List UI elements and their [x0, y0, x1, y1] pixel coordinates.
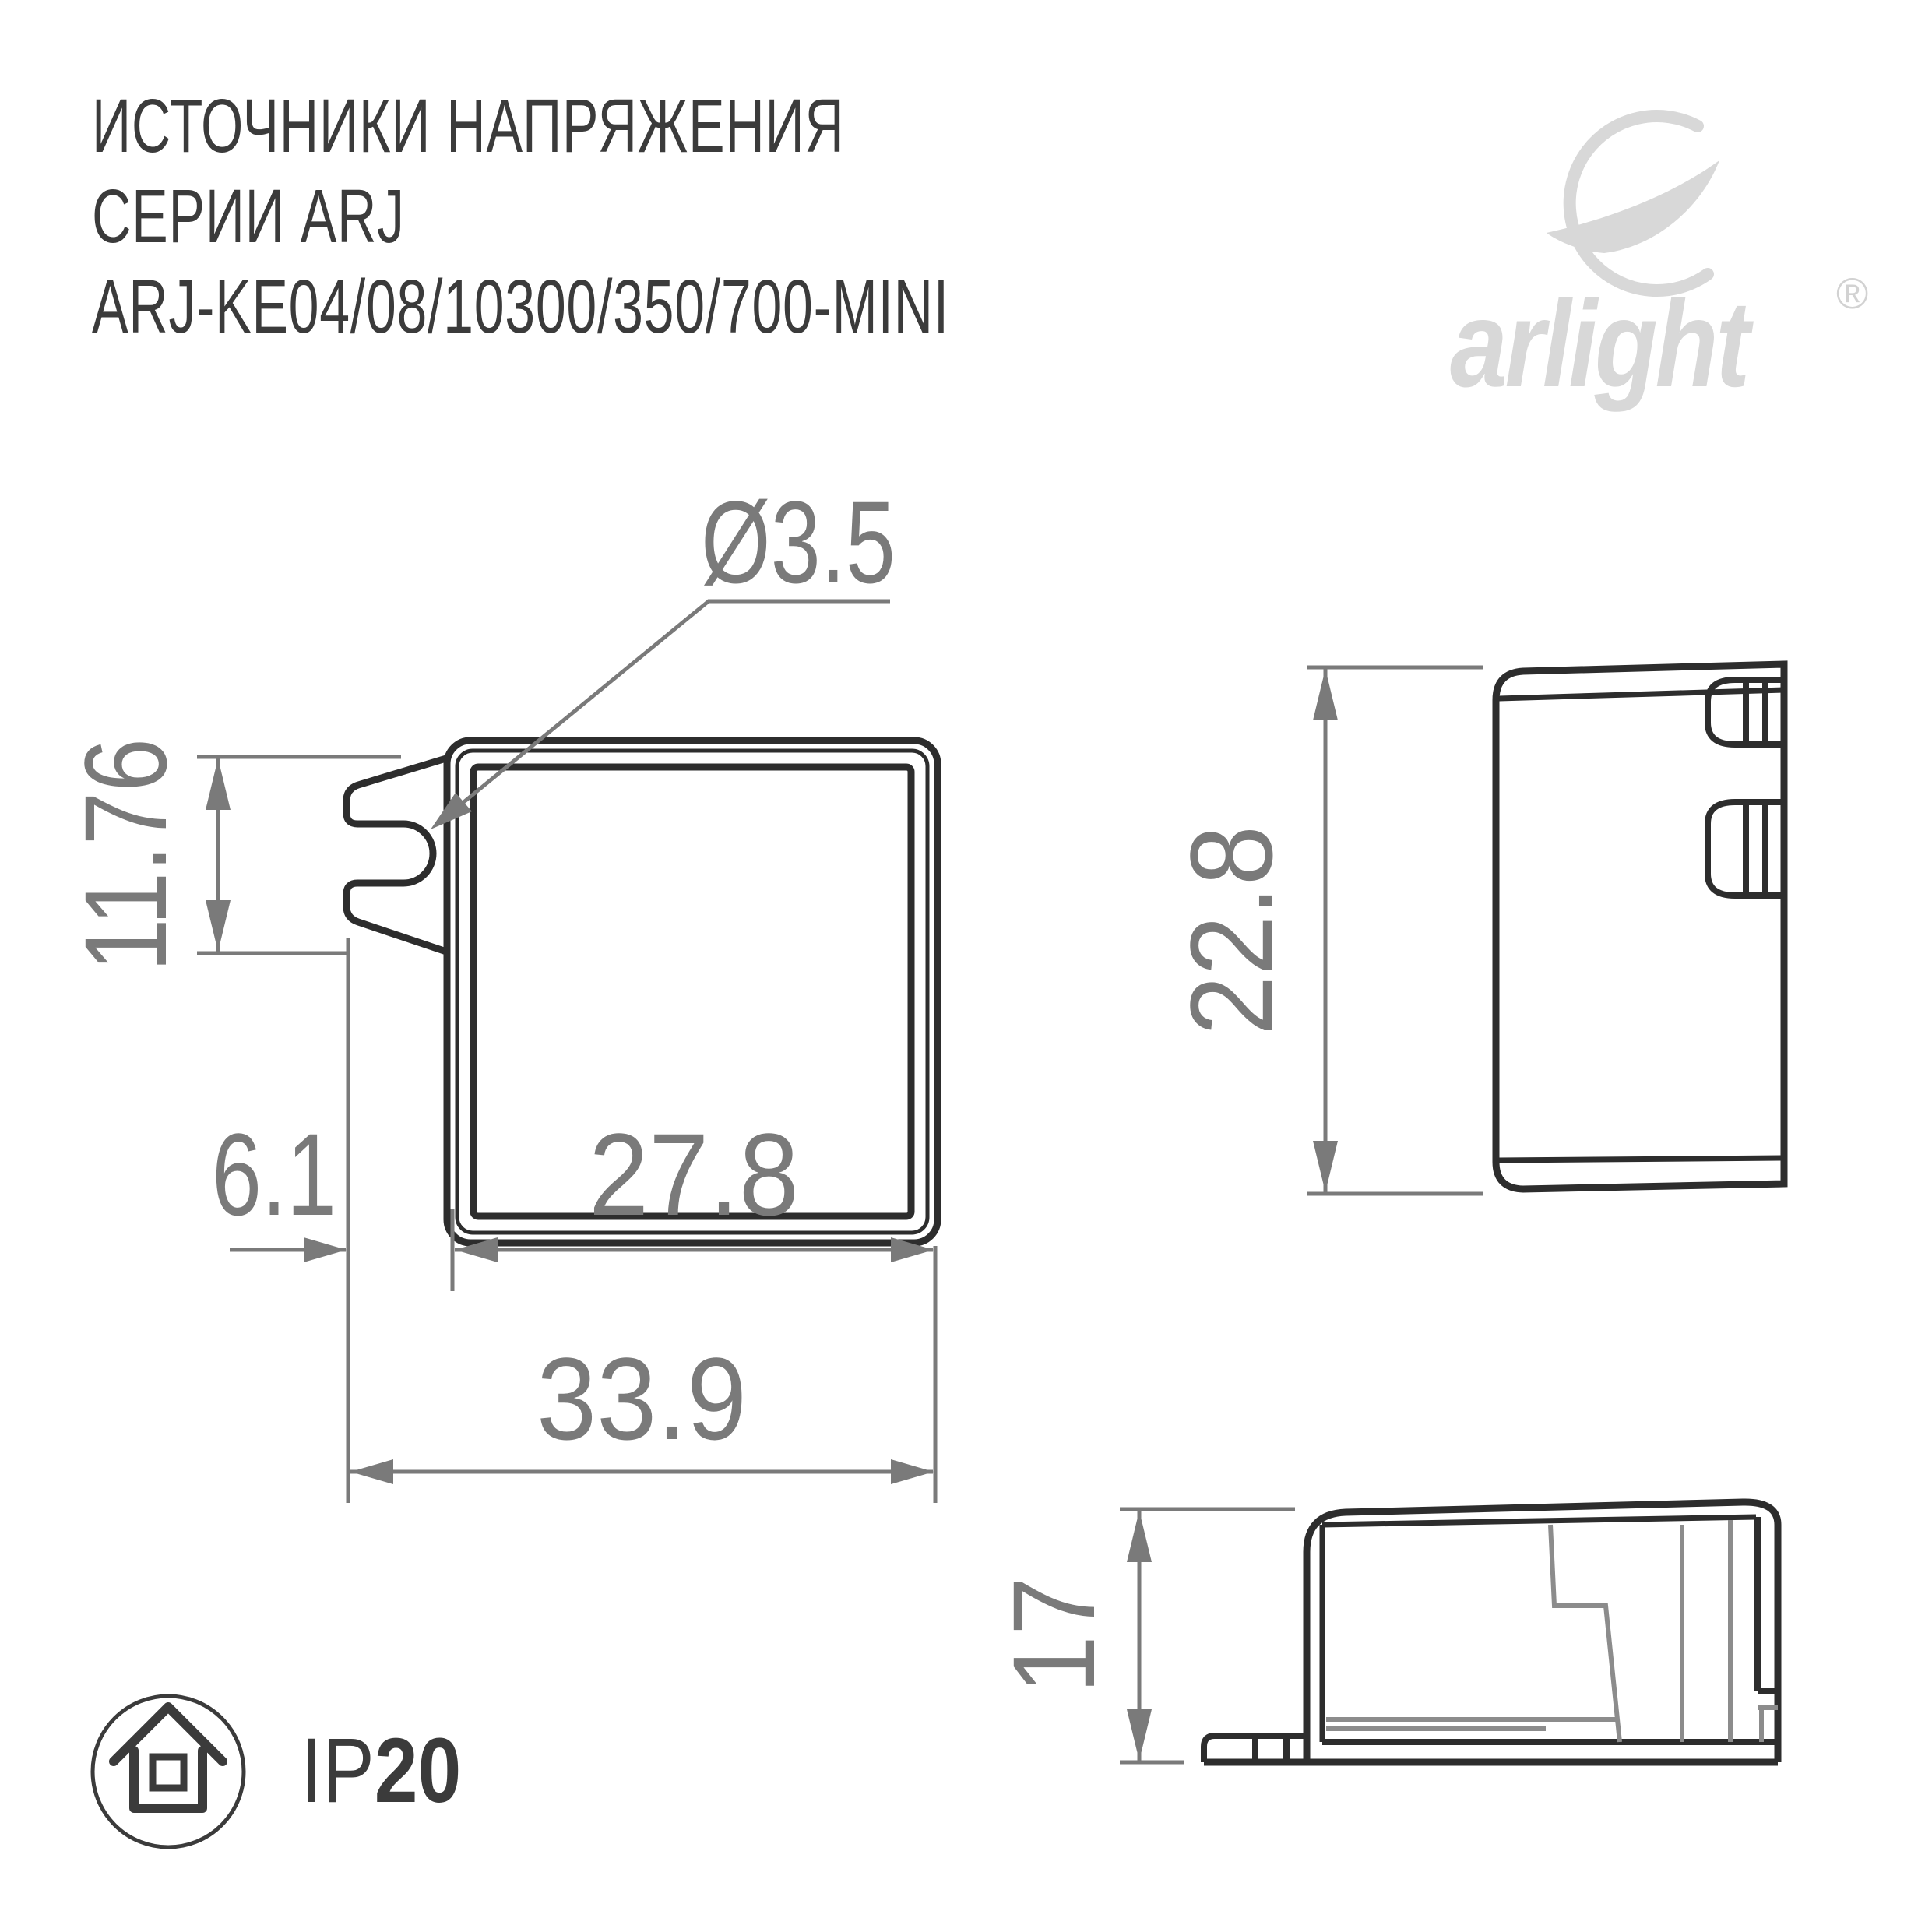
datasheet-page: Ø3.5 11.76 6.1 27.8 33.9: [0, 0, 1932, 1932]
indoor-use-icon: [93, 1696, 244, 1847]
side-view: [1496, 664, 1784, 1189]
title-line-2: СЕРИИ ARJ: [92, 171, 405, 262]
dim-side-height: 22.8: [1166, 825, 1297, 1036]
side-view-dimensions: [1307, 667, 1483, 1194]
terminal-lower: [1708, 802, 1784, 896]
profile-view: [1204, 1502, 1778, 1762]
dim-tab-offset: 6.1: [212, 1109, 336, 1240]
title-line-1: ИСТОЧНИКИ НАПРЯЖЕНИЯ: [92, 81, 845, 171]
mounting-foot: [1204, 1736, 1307, 1762]
page-title: ИСТОЧНИКИ НАПРЯЖЕНИЯ СЕРИИ ARJ ARJ-KE04/…: [92, 81, 1283, 352]
ip-rating: IP20: [301, 1719, 490, 1822]
front-view-labels: Ø3.5 11.76 6.1 27.8 33.9: [60, 477, 896, 1464]
mounting-tab: [347, 758, 449, 952]
arlight-logo: arlight ®: [1450, 274, 1804, 415]
ip-rating-value: 20: [375, 1719, 462, 1822]
arlight-swoosh-icon: [1547, 116, 1719, 290]
dim-overall-width: 33.9: [537, 1333, 747, 1464]
dim-hole-diameter: Ø3.5: [701, 477, 896, 607]
ip-rating-prefix: IP: [301, 1719, 375, 1822]
dim-body-width: 27.8: [589, 1109, 799, 1240]
dim-profile-height: 17: [988, 1577, 1119, 1694]
registered-trademark-icon: ®: [1836, 268, 1868, 318]
arlight-wordmark: arlight: [1450, 274, 1747, 415]
dim-tab-height: 11.76: [60, 738, 191, 972]
title-line-3: ARJ-KE04/08/10300/350/700-MINI: [92, 262, 949, 352]
profile-interior-lines: [1326, 1520, 1778, 1742]
